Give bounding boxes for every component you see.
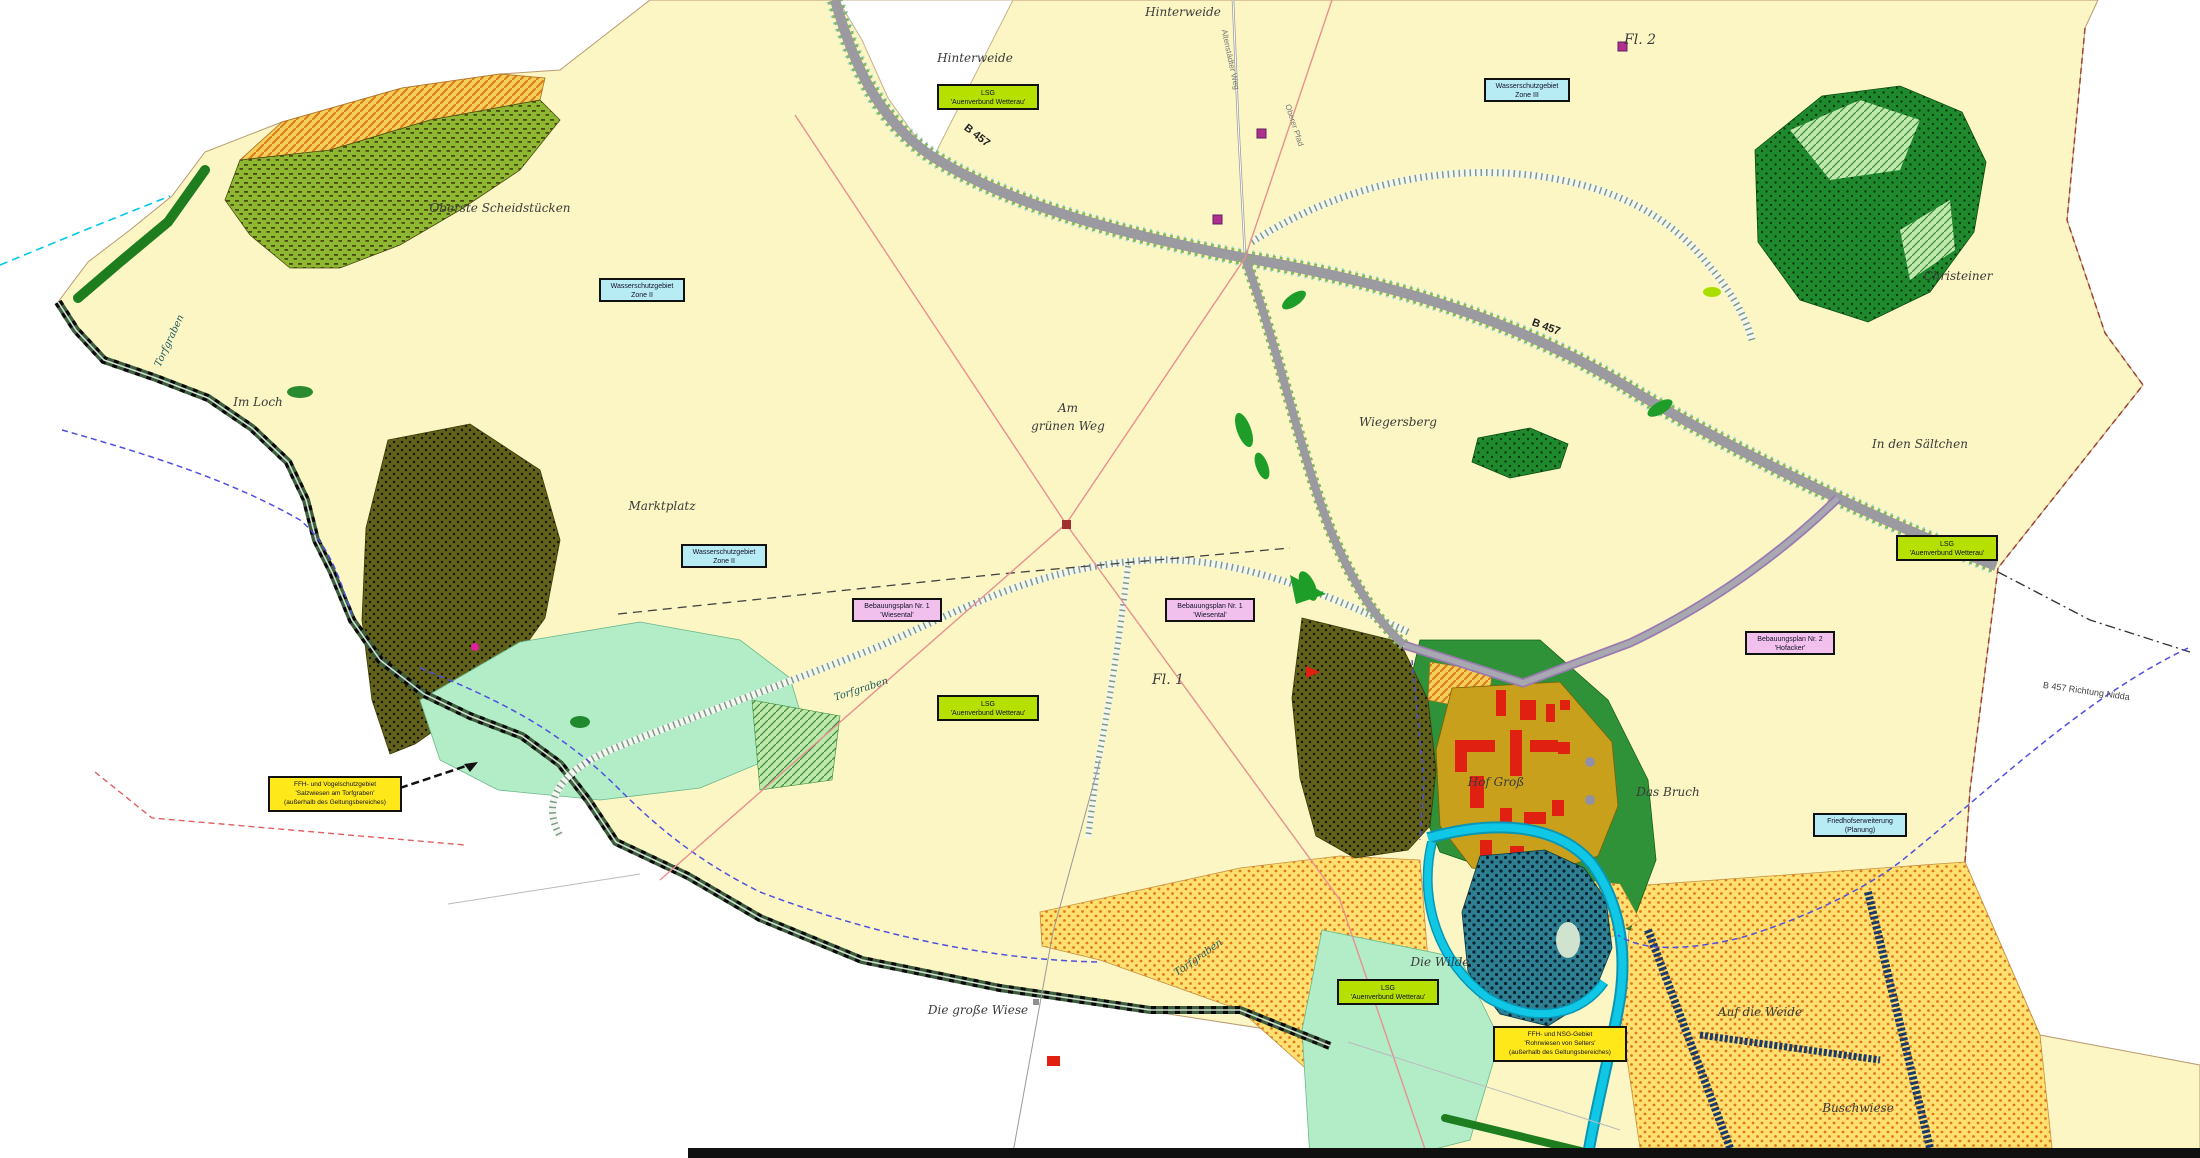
lsg-ost-line2: 'Auenverbund Wetterau' bbox=[1910, 550, 1985, 557]
wsg-mitte-line1: Wasserschutzgebiet bbox=[611, 283, 674, 290]
green-blob-west bbox=[287, 386, 313, 398]
wasserschutz-box-nordost: Wasserschutzgebiet Zone III bbox=[1485, 79, 1569, 101]
label-christeiner: Christeiner bbox=[1924, 269, 1994, 283]
friedhof-box: Friedhofserweiterung (Planung) bbox=[1814, 814, 1906, 836]
wsg-nordost-line2: Zone III bbox=[1515, 92, 1539, 99]
wsg-sued-line1: Wasserschutzgebiet bbox=[693, 549, 756, 556]
label-am-gruenen-weg-2: grünen Weg bbox=[1031, 419, 1105, 433]
label-fl-1: Fl. 1 bbox=[1151, 672, 1184, 688]
lsg-sued-line1: LSG bbox=[1381, 985, 1395, 992]
label-fl-2: Fl. 2 bbox=[1623, 32, 1656, 48]
label-buschwiese: Buschwiese bbox=[1821, 1101, 1894, 1115]
lsg-box-mitte: LSG 'Auenverbund Wetterau' bbox=[938, 696, 1038, 720]
label-die-wilde: Die Wilde bbox=[1410, 955, 1470, 969]
label-wiegersberg: Wiegersberg bbox=[1359, 415, 1437, 429]
label-das-bruch: Das Bruch bbox=[1635, 785, 1699, 799]
bplan2-line1: Bebauungsplan Nr. 1 bbox=[1177, 603, 1242, 610]
powerline-node bbox=[1062, 520, 1071, 529]
label-im-loch: Im Loch bbox=[232, 395, 283, 409]
bebauungsplan-box-1: Bebauungsplan Nr. 1 'Wiesental' bbox=[853, 599, 941, 621]
bplan1-line1: Bebauungsplan Nr. 1 bbox=[864, 603, 929, 610]
bebauungsplan-box-2: Bebauungsplan Nr. 1 'Wiesental' bbox=[1166, 599, 1254, 621]
village-dot-1 bbox=[1585, 757, 1595, 767]
label-in-den-saeltchen: In den Sältchen bbox=[1871, 437, 1968, 451]
lsg-box-ost: LSG 'Auenverbund Wetterau' bbox=[1897, 536, 1997, 560]
wsg-nordost-line1: Wasserschutzgebiet bbox=[1496, 83, 1559, 90]
friedhof-line2: (Planung) bbox=[1845, 827, 1875, 834]
label-die-grosse-wiese: Die große Wiese bbox=[927, 1003, 1028, 1017]
magenta-dot bbox=[471, 643, 479, 651]
bplan2-line2: 'Wiesental' bbox=[1193, 612, 1226, 619]
monument-symbol-2 bbox=[1213, 215, 1222, 224]
label-hinterweide-1: Hinterweide bbox=[936, 51, 1013, 65]
wasserschutz-box-sued: Wasserschutzgebiet Zone II bbox=[682, 545, 766, 567]
monument-symbol-1 bbox=[1257, 129, 1266, 138]
plan-map-svg: Hinterweide Hinterweide Fl. 2 Christeine… bbox=[0, 0, 2200, 1158]
ffh-sued-line3: (außerhalb des Geltungsbereiches) bbox=[1509, 1049, 1611, 1056]
ffh-sued-line1: FFH- und NSG-Gebiet bbox=[1528, 1031, 1593, 1038]
wetland-clearing bbox=[1556, 922, 1580, 958]
ffh-sued-line2: 'Rohrwiesen von Selters' bbox=[1524, 1040, 1595, 1047]
tree-blob-meadow bbox=[570, 716, 590, 728]
label-hof-gross: Hof Groß bbox=[1467, 775, 1525, 789]
bebauungsplan-box-3: Bebauungsplan Nr. 2 'Hofacker' bbox=[1746, 632, 1834, 654]
label-am-gruenen-weg-1: Am bbox=[1057, 401, 1078, 415]
meadow-hatch-patch bbox=[752, 700, 840, 790]
lsg-mitte-line2: 'Auenverbund Wetterau' bbox=[951, 710, 1026, 717]
bottom-frame-bar bbox=[688, 1148, 2200, 1158]
label-b457-richtung-nidda: B 457 Richtung Nidda bbox=[2042, 680, 2130, 702]
lsg-mitte-line1: LSG bbox=[981, 701, 995, 708]
map-canvas: Hinterweide Hinterweide Fl. 2 Christeine… bbox=[0, 0, 2200, 1158]
bplan3-line2: 'Hofacker' bbox=[1775, 645, 1806, 652]
label-hinterweide-2: Hinterweide bbox=[1144, 5, 1221, 19]
ffh-west-line2: 'Salzwiesen am Torfgraben' bbox=[296, 790, 375, 797]
lsg-box-nord: LSG 'Auenverbund Wetterau' bbox=[938, 85, 1038, 109]
bplan3-line1: Bebauungsplan Nr. 2 bbox=[1757, 636, 1822, 643]
bplan1-line2: 'Wiesental' bbox=[880, 612, 913, 619]
lsg-box-nord-line2: 'Auenverbund Wetterau' bbox=[951, 99, 1026, 106]
friedhof-line1: Friedhofserweiterung bbox=[1827, 818, 1893, 825]
ffh-west-line1: FFH- und Vogelschutzgebiet bbox=[294, 781, 376, 788]
lsg-box-sued: LSG 'Auenverbund Wetterau' bbox=[1338, 980, 1438, 1004]
dashdot-richtung-nidda bbox=[1998, 572, 2190, 652]
label-oberste-scheidstuecken: Oberste Scheidstücken bbox=[429, 201, 570, 215]
red-square-wiese bbox=[1047, 1056, 1060, 1066]
label-auf-die-weide: Auf die Weide bbox=[1717, 1005, 1802, 1019]
grey-node bbox=[1033, 999, 1039, 1005]
wsg-mitte-line2: Zone II bbox=[631, 292, 653, 299]
ffh-west-line3: (außerhalb des Geltungsbereiches) bbox=[284, 799, 386, 806]
lsg-box-nord-line1: LSG bbox=[981, 90, 995, 97]
wsg-sued-line2: Zone II bbox=[713, 558, 735, 565]
grey-line-wiese-1 bbox=[448, 874, 640, 904]
village-dot-2 bbox=[1585, 795, 1595, 805]
ffh-box-sued: FFH- und NSG-Gebiet 'Rohrwiesen von Selt… bbox=[1494, 1027, 1626, 1061]
wasserschutz-box-mitte: Wasserschutzgebiet Zone II bbox=[600, 279, 684, 301]
ffh-box-west: FFH- und Vogelschutzgebiet 'Salzwiesen a… bbox=[269, 762, 478, 811]
label-marktplatz: Marktplatz bbox=[627, 499, 696, 513]
lsg-sued-line2: 'Auenverbund Wetterau' bbox=[1351, 994, 1426, 1001]
lsg-ost-line1: LSG bbox=[1940, 541, 1954, 548]
